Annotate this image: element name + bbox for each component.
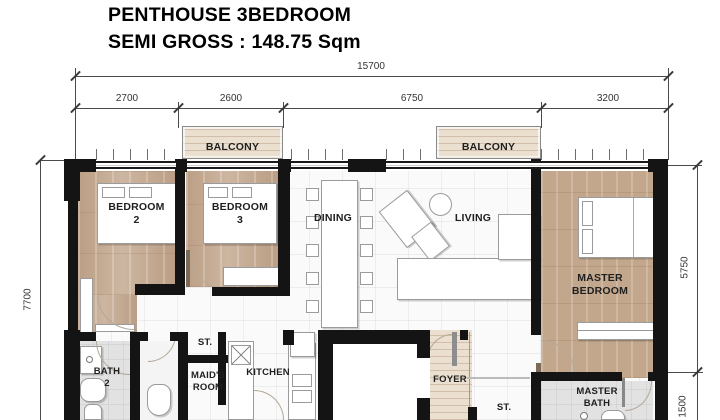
room-label-kitchen: KITCHEN (240, 367, 296, 379)
dim-line-segments (75, 108, 668, 109)
dim-label-left: 7700 (23, 278, 34, 322)
master-pillow (582, 201, 593, 226)
wall-master-lower (531, 372, 541, 420)
threshold-line (467, 377, 530, 379)
window-mullion-ticks (96, 149, 176, 160)
kitchen-sink (231, 345, 251, 365)
master-bath-sink (601, 410, 625, 420)
wall-bath2-top (78, 332, 96, 341)
dining-chair (306, 244, 319, 257)
wall-master-upper (531, 159, 541, 335)
kitchen-oven (292, 390, 312, 403)
bath2-faucet (86, 356, 93, 363)
bedroom2-wardrobe (80, 278, 93, 333)
master-bed-divider (633, 198, 634, 257)
window-mullion-ticks (541, 149, 648, 160)
dim-extension (75, 68, 76, 160)
wall-bedroom3-dining (278, 159, 290, 296)
room-label-balcony-left: BALCONY (182, 141, 283, 154)
dim-label-total: 15700 (341, 61, 401, 72)
dining-chair (306, 272, 319, 285)
wall-kitchen-pier (283, 330, 294, 345)
room-label-balcony-right: BALCONY (436, 141, 541, 154)
window-mullion-ticks (291, 149, 348, 160)
window-balcony-door (436, 161, 541, 169)
dining-chair (360, 300, 373, 313)
wall-foyer-pier-top (460, 330, 468, 340)
wall-master-bath-top (541, 372, 622, 381)
bath2-toilet (84, 404, 102, 420)
room-label-bedroom3: BEDROOM 3 (203, 201, 277, 227)
room-label-master-bedroom: MASTER BEDROOM (556, 272, 644, 298)
room-label-living: LIVING (443, 212, 503, 225)
room-label-bath2: BATH 2 (84, 366, 130, 389)
bedroom3-wardrobe (223, 267, 280, 286)
wall-wc-top (140, 332, 148, 341)
wall-right-lower (655, 379, 668, 420)
master-bath-drain (580, 412, 588, 420)
wall-left-lower (64, 330, 80, 420)
bedroom3-pillow (208, 187, 228, 198)
dim-label-right-top: 5750 (680, 246, 691, 290)
dim-line-total (75, 76, 668, 77)
bedroom2-pillow (129, 187, 152, 198)
room-label-storage-bottom: ST. (487, 402, 521, 414)
room-label-foyer: FOYER (426, 374, 474, 386)
wall-bedroom2-3 (175, 159, 185, 295)
dim-line-left (40, 160, 41, 420)
wall-bath2-wc (130, 332, 140, 420)
window (291, 161, 348, 169)
window (541, 161, 648, 169)
room-label-bedroom2: BEDROOM 2 (97, 201, 176, 227)
dim-line-right (697, 165, 698, 420)
bedroom3-pillow (232, 187, 252, 198)
dining-chair (360, 188, 373, 201)
wall-bedroom2-bottom (135, 284, 180, 295)
dining-chair (360, 244, 373, 257)
wall-bedroom3-bottom (212, 287, 282, 296)
wall (348, 159, 386, 172)
wall-st-bottom (188, 355, 228, 363)
window-balcony-door (187, 161, 278, 169)
room-label-storage-top: ST. (186, 337, 224, 349)
room-label-dining: DINING (303, 212, 363, 225)
dining-table (321, 180, 358, 328)
floor-plan: PENTHOUSE 3BEDROOM SEMI GROSS : 148.75 S… (0, 0, 720, 420)
bedroom2-pillow (102, 187, 125, 198)
dim-extension (668, 68, 669, 160)
dining-chair (360, 272, 373, 285)
living-sofa-seat (397, 258, 540, 300)
dim-label-right-bottom: 1500 (678, 385, 689, 420)
master-pillow (582, 229, 593, 254)
wc-toilet (147, 384, 171, 416)
wall-master-bath-top2 (648, 372, 655, 381)
master-dresser (577, 322, 655, 340)
wall-right (653, 159, 668, 379)
master-dresser-line (577, 330, 655, 331)
dining-chair (306, 300, 319, 313)
window-mullion-ticks (386, 149, 436, 160)
dim-label-segment-3: 3200 (580, 93, 636, 104)
plan-title: PENTHOUSE 3BEDROOM (108, 4, 351, 27)
room-label-maids-room: MAID'S ROOM (180, 370, 236, 393)
foyer-door-leaf (452, 332, 457, 366)
dim-label-segment-0: 2700 (99, 93, 155, 104)
core-shaft (333, 344, 417, 420)
room-label-master-bath: MASTER BATH (570, 386, 624, 409)
dim-label-segment-1: 2600 (203, 93, 259, 104)
window (386, 161, 436, 169)
dining-chair (306, 188, 319, 201)
dim-label-segment-2: 6750 (384, 93, 440, 104)
wall-foyer-pier-bottom (468, 407, 477, 420)
window (96, 161, 176, 169)
plan-subtitle: SEMI GROSS : 148.75 Sqm (108, 31, 361, 54)
